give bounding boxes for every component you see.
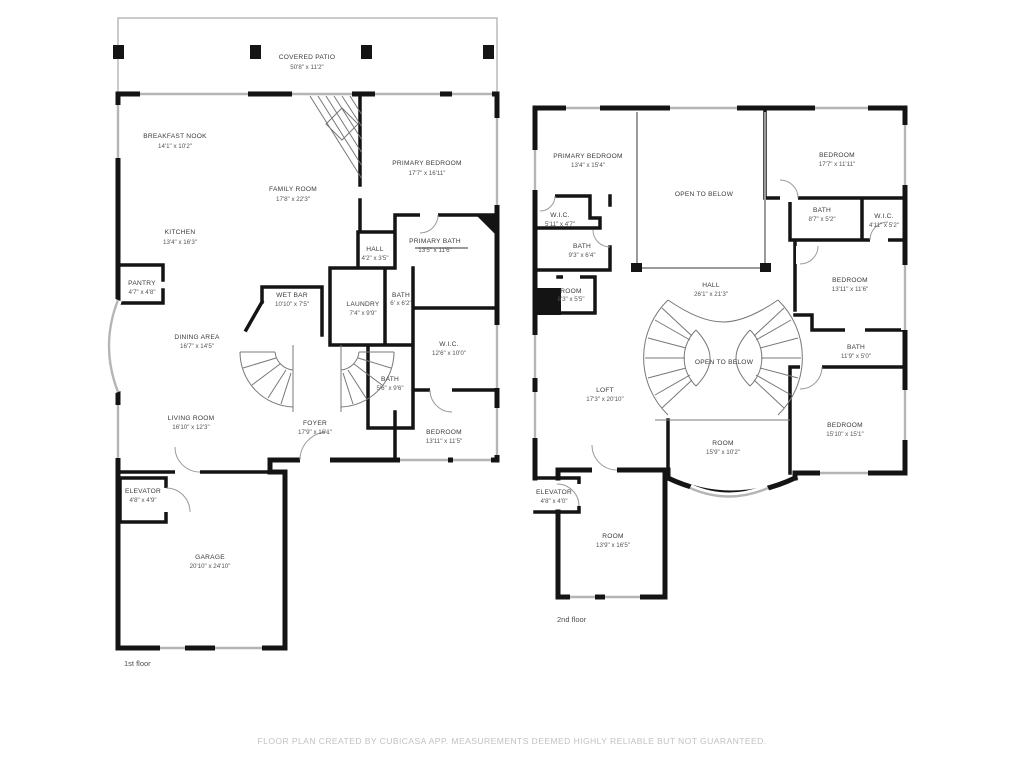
room-label-wet-bar: WET BAR: [276, 292, 308, 299]
room-dims-loft: 17'3" x 20'10": [586, 396, 623, 403]
room-label-room-159: ROOM: [712, 440, 734, 447]
floor-plan-canvas: COVERED PATIO 50'8" x 11'2" BREAKFAST NO…: [0, 0, 1024, 768]
room-label-bath-87: BATH: [813, 207, 831, 214]
room-dims-elevator: 4'8" x 4'9": [129, 497, 156, 504]
room-dims-pantry: 4'7" x 4'8": [128, 289, 155, 296]
room-dims-family-room: 17'8" x 22'3": [276, 196, 310, 203]
room-label-bath-119: BATH: [847, 344, 865, 351]
floor1-stairs-curved: [240, 345, 394, 412]
room-dims-hall: 4'2" x 3'5": [361, 255, 388, 262]
room-label-primary-bath: PRIMARY BATH: [409, 238, 461, 245]
floor1-label: 1st floor: [124, 659, 151, 668]
room-dims-bath: 5'6" x 9'6": [376, 385, 403, 392]
room-dims-room-139: 13'9" x 16'5": [596, 542, 630, 549]
room-label-bedroom-right: BEDROOM: [832, 277, 868, 284]
floor1-door-gaps: [166, 215, 452, 512]
room-dims-garage: 20'10" x 24'10": [190, 563, 231, 570]
room-label-bath-small: BATH: [392, 292, 410, 299]
room-label-loft: LOFT: [596, 387, 614, 394]
floor1-plan: COVERED PATIO 50'8" x 11'2" BREAKFAST NO…: [109, 18, 497, 668]
room-dims-bedroom-right: 13'11" x 11'6": [832, 286, 868, 293]
footer-disclaimer: FLOOR PLAN CREATED BY CUBICASA APP. MEAS…: [257, 736, 766, 746]
room-label-room-139: ROOM: [602, 533, 624, 540]
room-label-foyer: FOYER: [303, 420, 327, 427]
room-dims-covered-patio: 50'8" x 11'2": [290, 64, 323, 71]
floor2-railings: [637, 112, 765, 268]
floor1-windows: [109, 94, 497, 648]
room-dims-bath-93: 9'3" x 6'4": [568, 252, 595, 259]
room-dims-foyer: 17'9" x 16'1": [298, 429, 332, 436]
room-dims-wic-right: 4'11" x 5'2": [869, 222, 899, 229]
room-dims-breakfast-nook: 14'1" x 10'2": [158, 143, 192, 150]
room-dims-wet-bar: 10'10" x 7'5": [275, 301, 309, 308]
floor1-windows-underlay: [109, 94, 497, 648]
room-label-primary-bedroom: PRIMARY BEDROOM: [392, 160, 461, 167]
room-dims-elevator2: 4'8" x 4'0": [540, 498, 567, 505]
room-label-elevator2: ELEVATOR: [536, 489, 572, 496]
room-label-bath-93: BATH: [573, 243, 591, 250]
room-dims-bedroom-br: 15'10" x 15'1": [826, 431, 863, 438]
room-label-bedroom-tr: BEDROOM: [819, 152, 855, 159]
room-label-living-room: LIVING ROOM: [168, 415, 215, 422]
room-label-dining-area: DINING AREA: [174, 334, 220, 341]
room-label-bath: BATH: [381, 376, 399, 383]
room-label-covered-patio: COVERED PATIO: [279, 54, 336, 61]
room-label-wic-right: W.I.C.: [874, 213, 893, 220]
room-dims-bath-87: 8'7" x 5'2": [808, 216, 835, 223]
room-dims-primary-bedroom2: 13'4" x 15'4": [571, 162, 605, 169]
room-label-open-to-below-center: OPEN TO BELOW: [695, 359, 754, 366]
room-dims-kitchen: 13'4" x 16'3": [163, 239, 197, 246]
floor1-exterior-walls: [109, 94, 497, 648]
room-dims-room-83: 8'3" x 5'5": [557, 296, 584, 303]
room-dims-bedroom-tr: 17'7" x 11'11": [819, 161, 855, 168]
floor1-door-arcs: [166, 215, 452, 512]
floor1-corner-shower: [476, 215, 497, 236]
room-dims-primary-bedroom: 17'7" x 16'11": [409, 170, 446, 177]
room-dims-wic-left: 5'11" x 4'7": [545, 221, 575, 228]
room-label-kitchen: KITCHEN: [165, 229, 196, 236]
room-label-room-83: ROOM: [560, 288, 582, 295]
room-label-garage: GARAGE: [195, 554, 225, 561]
room-dims-bath-small: 6' x 6'2": [390, 300, 411, 307]
room-label-bedroom-br: BEDROOM: [827, 422, 863, 429]
room-label-primary-bedroom2: PRIMARY BEDROOM: [553, 153, 622, 160]
room-label-hall: HALL: [366, 246, 384, 253]
room-dims-room-159: 15'9" x 10'2": [706, 449, 740, 456]
floor2-plan: PRIMARY BEDROOM 13'4" x 15'4" OPEN TO BE…: [535, 108, 905, 624]
room-dims-laundry: 7'4" x 9'9": [349, 310, 376, 317]
floor-plan-page: COVERED PATIO 50'8" x 11'2" BREAKFAST NO…: [0, 0, 1024, 768]
room-label-open-to-below-top: OPEN TO BELOW: [675, 191, 734, 198]
room-label-hall2: HALL: [702, 282, 720, 289]
room-dims-bath-119: 11'9" x 5'0": [841, 353, 871, 360]
room-dims-living-room: 16'10" x 12'3": [172, 424, 209, 431]
room-label-laundry: LAUNDRY: [346, 301, 379, 308]
room-label-family-room: FAMILY ROOM: [269, 186, 317, 193]
room-label-wic-left: W.I.C.: [550, 212, 569, 219]
room-label-pantry: PANTRY: [128, 280, 156, 287]
room-label-elevator: ELEVATOR: [125, 488, 161, 495]
room-label-bedroom: BEDROOM: [426, 429, 462, 436]
room-dims-bedroom: 13'11" x 11'5": [426, 438, 462, 445]
floor2-label: 2nd floor: [557, 615, 587, 624]
floor2-door-gaps: [540, 196, 888, 506]
floor1-stairs-hatch: [310, 96, 362, 179]
room-dims-wic: 12'6" x 10'0": [432, 350, 466, 357]
room-label-breakfast-nook: BREAKFAST NOOK: [143, 133, 207, 140]
room-label-wic: W.I.C.: [439, 341, 458, 348]
floor1-labels: COVERED PATIO 50'8" x 11'2" BREAKFAST NO…: [125, 54, 466, 570]
room-dims-primary-bath: 13'5" x 11'6": [418, 247, 451, 254]
room-dims-hall2: 26'1" x 21'3": [694, 291, 728, 298]
room-dims-dining-area: 16'7" x 14'5": [180, 343, 214, 350]
